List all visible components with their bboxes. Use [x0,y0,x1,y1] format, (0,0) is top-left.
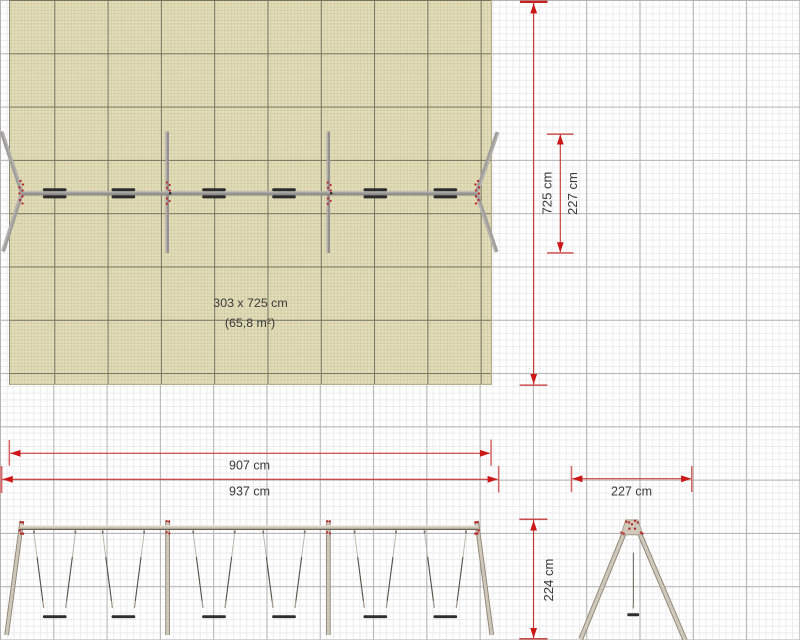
svg-text:224 cm: 224 cm [541,558,556,601]
svg-text:907 cm: 907 cm [229,459,270,473]
svg-text:725 cm: 725 cm [540,171,555,214]
svg-text:937 cm: 937 cm [229,485,270,499]
svg-text:(65,8 m²): (65,8 m²) [225,316,275,330]
svg-text:303 x 725 cm: 303 x 725 cm [213,296,287,310]
svg-text:227 cm: 227 cm [611,485,652,499]
svg-text:227 cm: 227 cm [565,172,580,215]
